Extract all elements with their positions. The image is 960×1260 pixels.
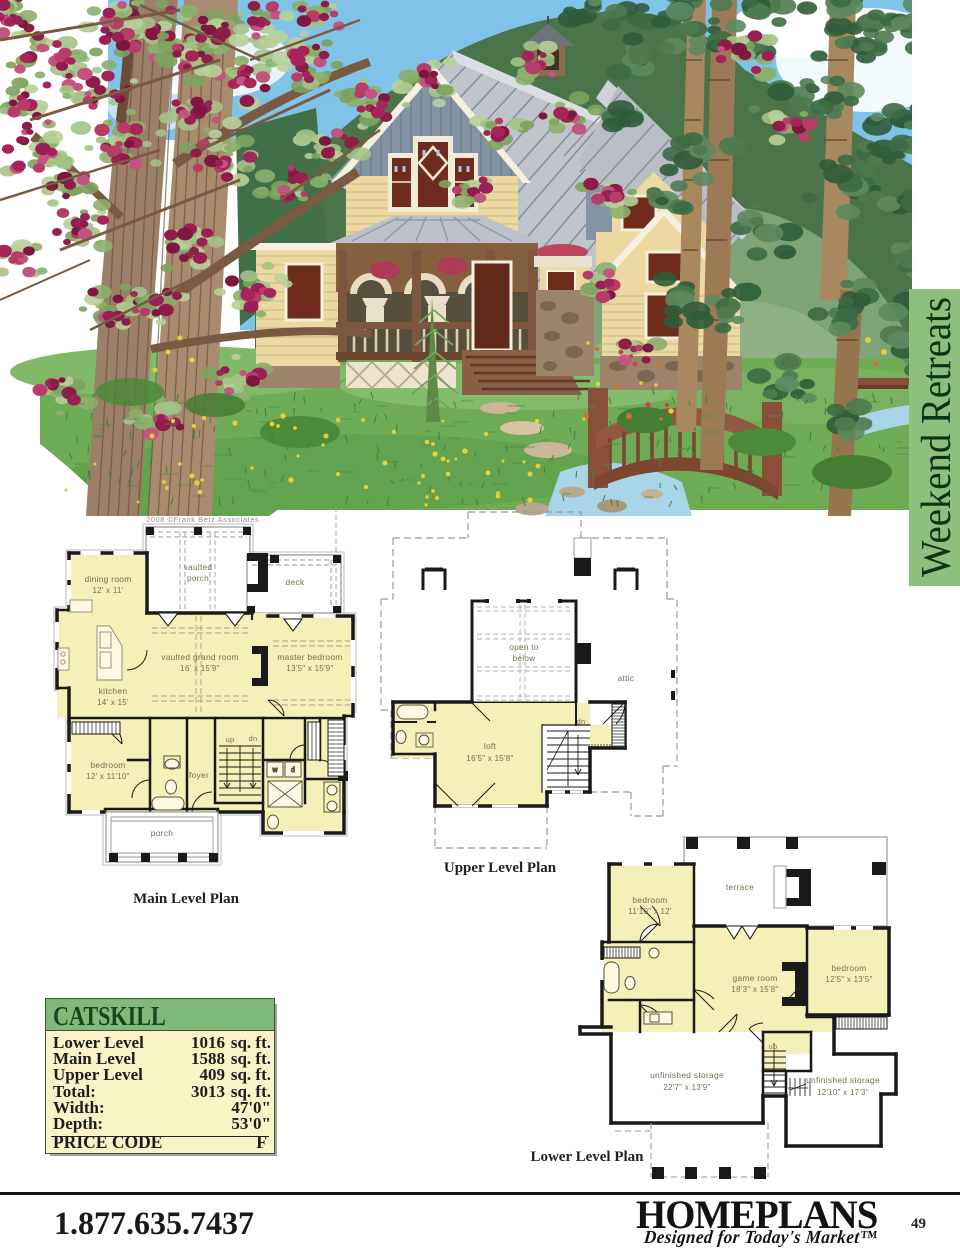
svg-text:12'5" x 13'5": 12'5" x 13'5"	[825, 975, 872, 984]
svg-text:dn: dn	[577, 717, 586, 726]
svg-text:2008 ©Frank Betz Associates: 2008 ©Frank Betz Associates	[146, 515, 259, 524]
svg-text:open to: open to	[509, 643, 539, 652]
svg-text:up: up	[769, 1042, 778, 1051]
svg-text:vaulted: vaulted	[184, 563, 213, 572]
svg-text:dn: dn	[249, 734, 258, 743]
svg-text:bedroom: bedroom	[632, 895, 667, 905]
svg-text:vaulted grand room: vaulted grand room	[161, 652, 239, 662]
svg-text:porch: porch	[151, 828, 173, 838]
svg-text:Main Level Plan: Main Level Plan	[133, 891, 239, 907]
svg-text:attic: attic	[618, 673, 635, 683]
svg-text:dining room: dining room	[84, 574, 131, 584]
svg-text:22'7" x 13'9": 22'7" x 13'9"	[663, 1083, 710, 1092]
svg-text:13'5" x 15'9": 13'5" x 15'9"	[286, 664, 333, 673]
svg-text:up: up	[226, 735, 235, 744]
svg-text:below: below	[513, 654, 536, 663]
svg-text:12' x 11': 12' x 11'	[92, 586, 123, 595]
svg-text:12'10" x 17'3": 12'10" x 17'3"	[817, 1088, 869, 1097]
svg-text:Weekend Retreats: Weekend Retreats	[914, 297, 960, 577]
svg-text:11'10" x 12': 11'10" x 12'	[628, 907, 672, 916]
svg-text:d: d	[291, 767, 295, 774]
svg-text:14' x 15': 14' x 15'	[97, 698, 129, 707]
svg-text:16'5" x 15'8": 16'5" x 15'8"	[466, 754, 513, 763]
svg-text:12' x 11'10": 12' x 11'10"	[86, 772, 130, 781]
svg-text:16' x 15'9": 16' x 15'9"	[180, 664, 219, 673]
svg-text:loft: loft	[484, 741, 497, 751]
svg-text:18'3" x 15'8": 18'3" x 15'8"	[731, 985, 778, 994]
svg-text:master bedroom: master bedroom	[277, 652, 342, 662]
svg-text:deck: deck	[286, 577, 305, 587]
svg-text:bedroom: bedroom	[831, 963, 866, 973]
svg-text:foyer: foyer	[189, 770, 209, 780]
svg-text:Lower Level Plan: Lower Level Plan	[530, 1149, 644, 1165]
svg-text:game room: game room	[732, 973, 777, 983]
svg-text:kitchen: kitchen	[99, 686, 128, 696]
svg-text:unfinished storage: unfinished storage	[650, 1070, 724, 1080]
svg-text:w: w	[271, 767, 278, 774]
svg-text:unfinished storage: unfinished storage	[806, 1075, 880, 1085]
svg-text:bedroom: bedroom	[90, 760, 125, 770]
svg-text:porch: porch	[187, 574, 209, 583]
svg-text:terrace: terrace	[726, 882, 754, 892]
